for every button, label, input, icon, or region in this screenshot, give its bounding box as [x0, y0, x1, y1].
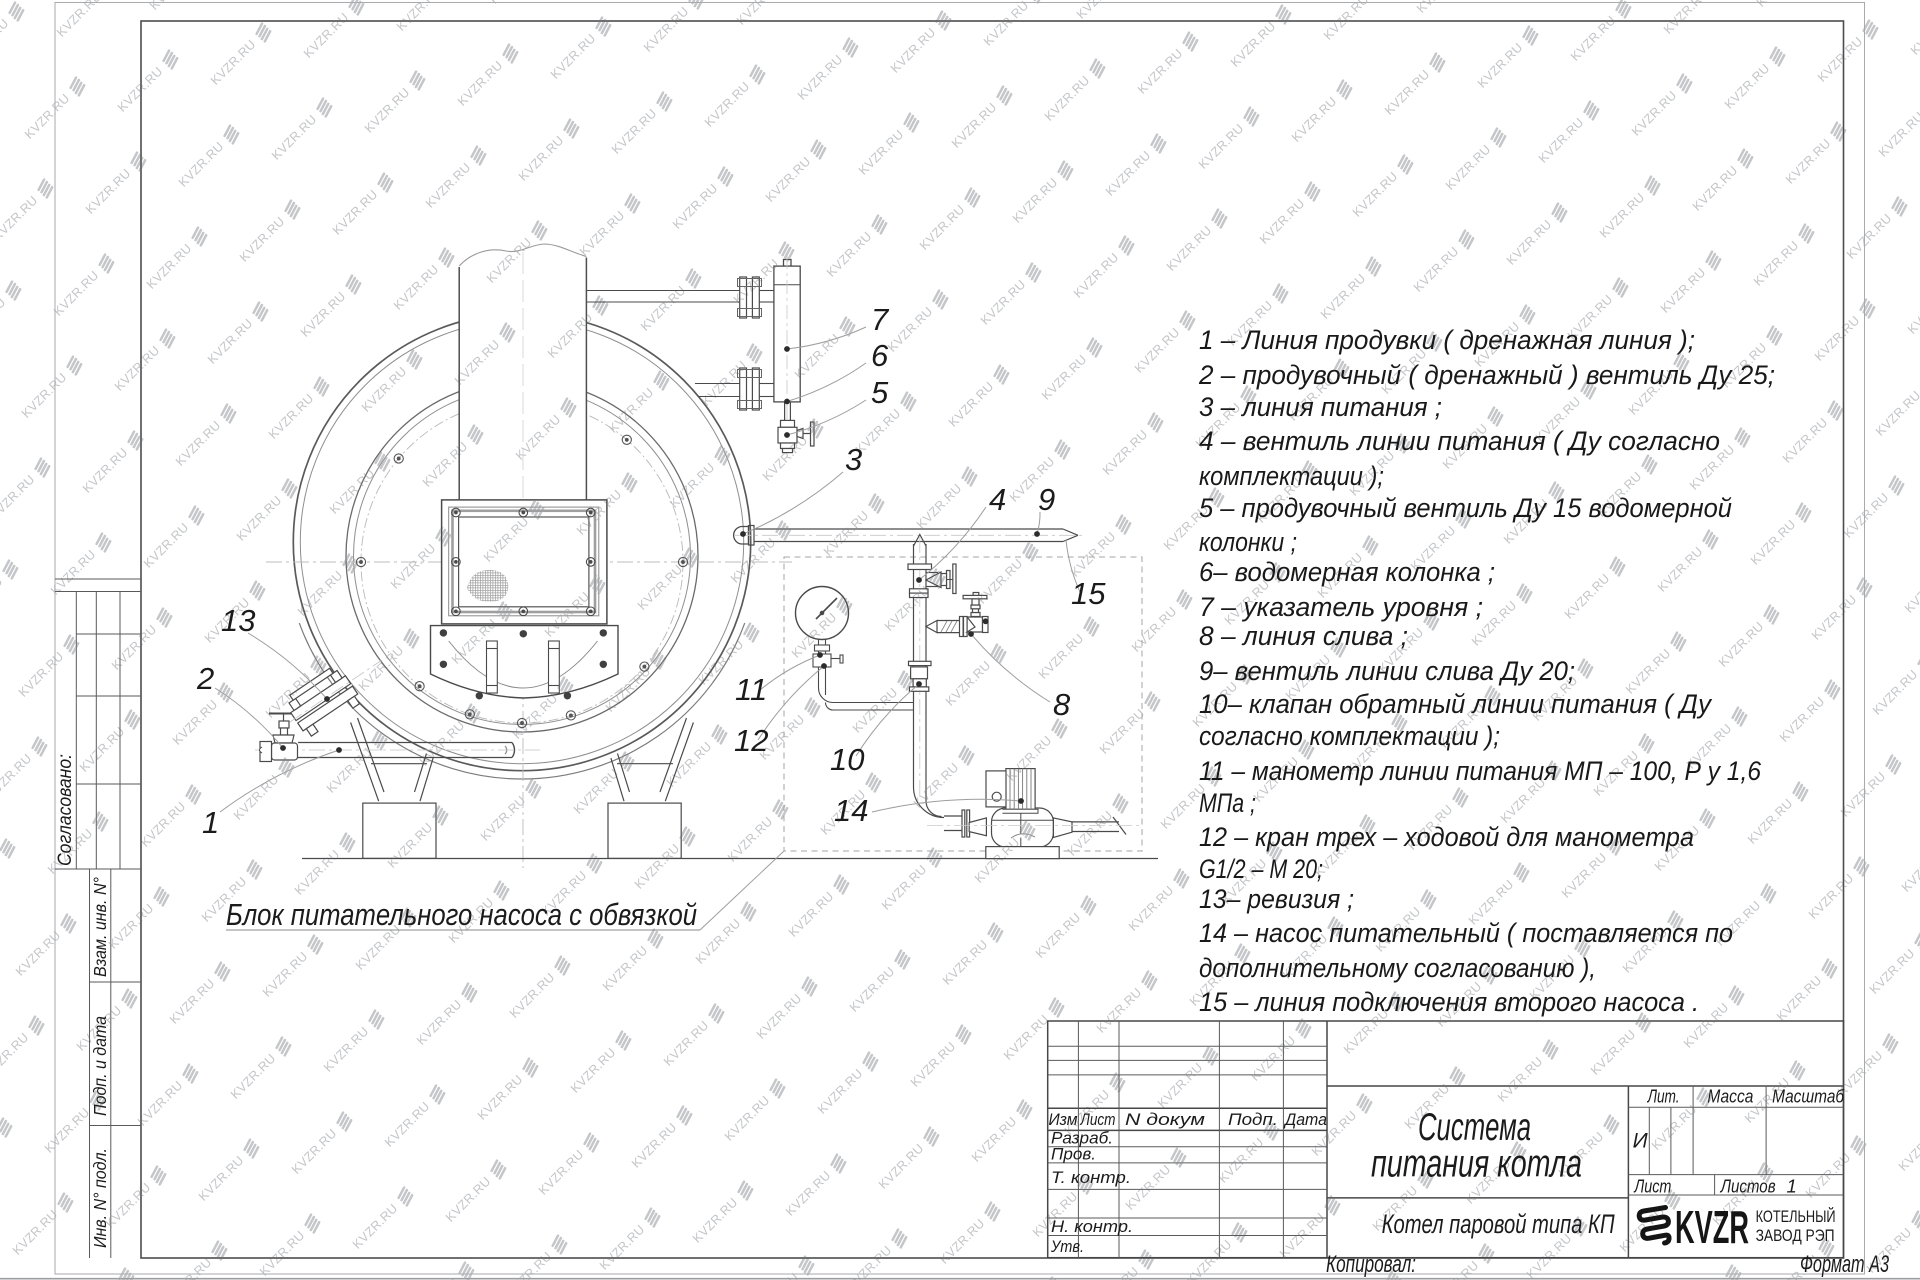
svg-text:Лист: Лист [1634, 1176, 1672, 1197]
svg-text:10: 10 [830, 742, 864, 777]
svg-text:дополнительному согласованию: дополнительному согласованию ), [1199, 953, 1596, 983]
svg-text:5: 5 [871, 375, 889, 410]
svg-text:Копировал:: Копировал: [1326, 1251, 1416, 1278]
svg-text:КОТЕЛЬНЫЙ: КОТЕЛЬНЫЙ [1756, 1207, 1836, 1226]
svg-text:Взам. инв. N°: Взам. инв. N° [90, 877, 110, 977]
svg-text:4: 4 [989, 482, 1006, 517]
svg-text:1 – Линия продувки ( дренажн: 1 – Линия продувки ( дренажная линия ); [1199, 325, 1695, 355]
svg-text:Дата: Дата [1283, 1110, 1327, 1129]
svg-text:N докум: N докум [1125, 1110, 1205, 1129]
svg-text:Инв. N° подл.: Инв. N° подл. [90, 1148, 110, 1248]
svg-text:Н. контр.: Н. контр. [1051, 1217, 1133, 1236]
svg-text:Пров.: Пров. [1051, 1145, 1096, 1164]
svg-text:колонки ;: колонки ; [1199, 527, 1297, 557]
svg-text:1: 1 [1787, 1176, 1797, 1197]
svg-text:1: 1 [202, 805, 219, 840]
svg-text:15: 15 [1071, 576, 1106, 611]
svg-text:Масса: Масса [1707, 1086, 1753, 1107]
svg-text:8: 8 [1053, 687, 1071, 722]
svg-text:Лит.: Лит. [1647, 1086, 1680, 1107]
svg-text:И: И [1633, 1130, 1649, 1153]
svg-text:питания котла: питания котла [1371, 1143, 1582, 1186]
svg-text:МПа ;: МПа ; [1199, 788, 1256, 818]
svg-text:7: 7 [871, 302, 890, 337]
svg-text:9: 9 [1038, 482, 1055, 517]
svg-text:2: 2 [196, 661, 214, 696]
svg-text:Утв.: Утв. [1050, 1237, 1084, 1256]
svg-text:11: 11 [735, 672, 767, 707]
